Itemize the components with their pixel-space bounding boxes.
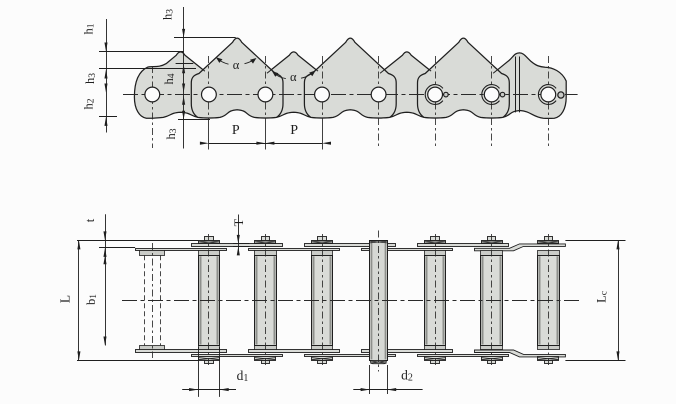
svg-text:T: T: [232, 218, 246, 226]
svg-text:L: L: [58, 295, 73, 303]
svg-text:α: α: [233, 58, 240, 72]
svg-text:P: P: [232, 123, 240, 138]
svg-text:P: P: [290, 123, 298, 138]
svg-text:α: α: [290, 70, 297, 84]
svg-text:t: t: [83, 218, 97, 222]
